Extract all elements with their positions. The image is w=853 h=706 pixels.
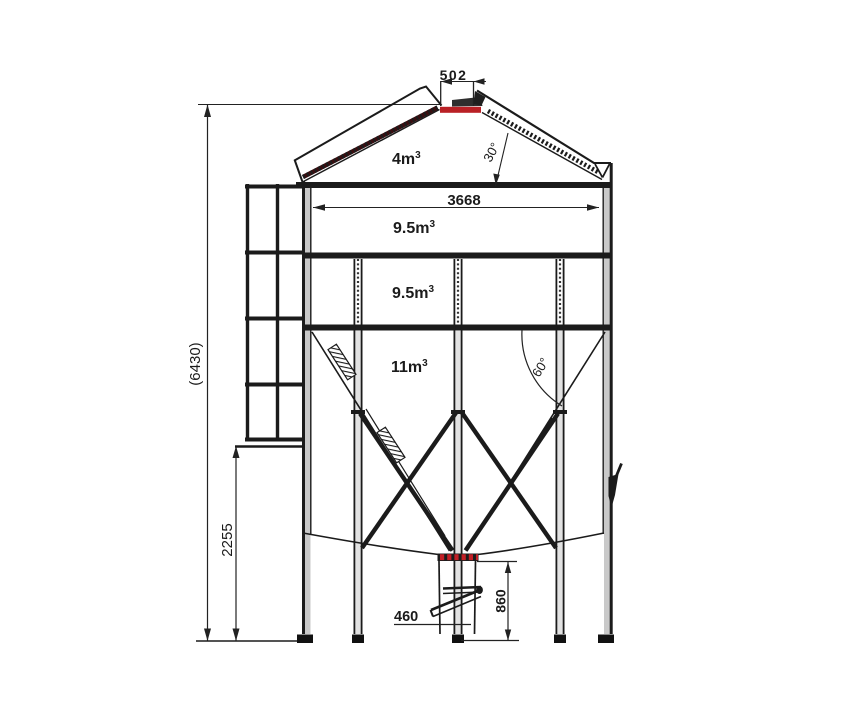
svg-text:2255: 2255 <box>219 523 236 556</box>
svg-text:460: 460 <box>394 609 418 625</box>
svg-text:3668: 3668 <box>447 192 480 209</box>
svg-text:502: 502 <box>440 67 468 83</box>
svg-text:9.5m3: 9.5m3 <box>393 219 435 237</box>
svg-text:860: 860 <box>493 589 509 613</box>
svg-text:9.5m3: 9.5m3 <box>392 284 434 302</box>
svg-text:(6430): (6430) <box>187 342 204 385</box>
